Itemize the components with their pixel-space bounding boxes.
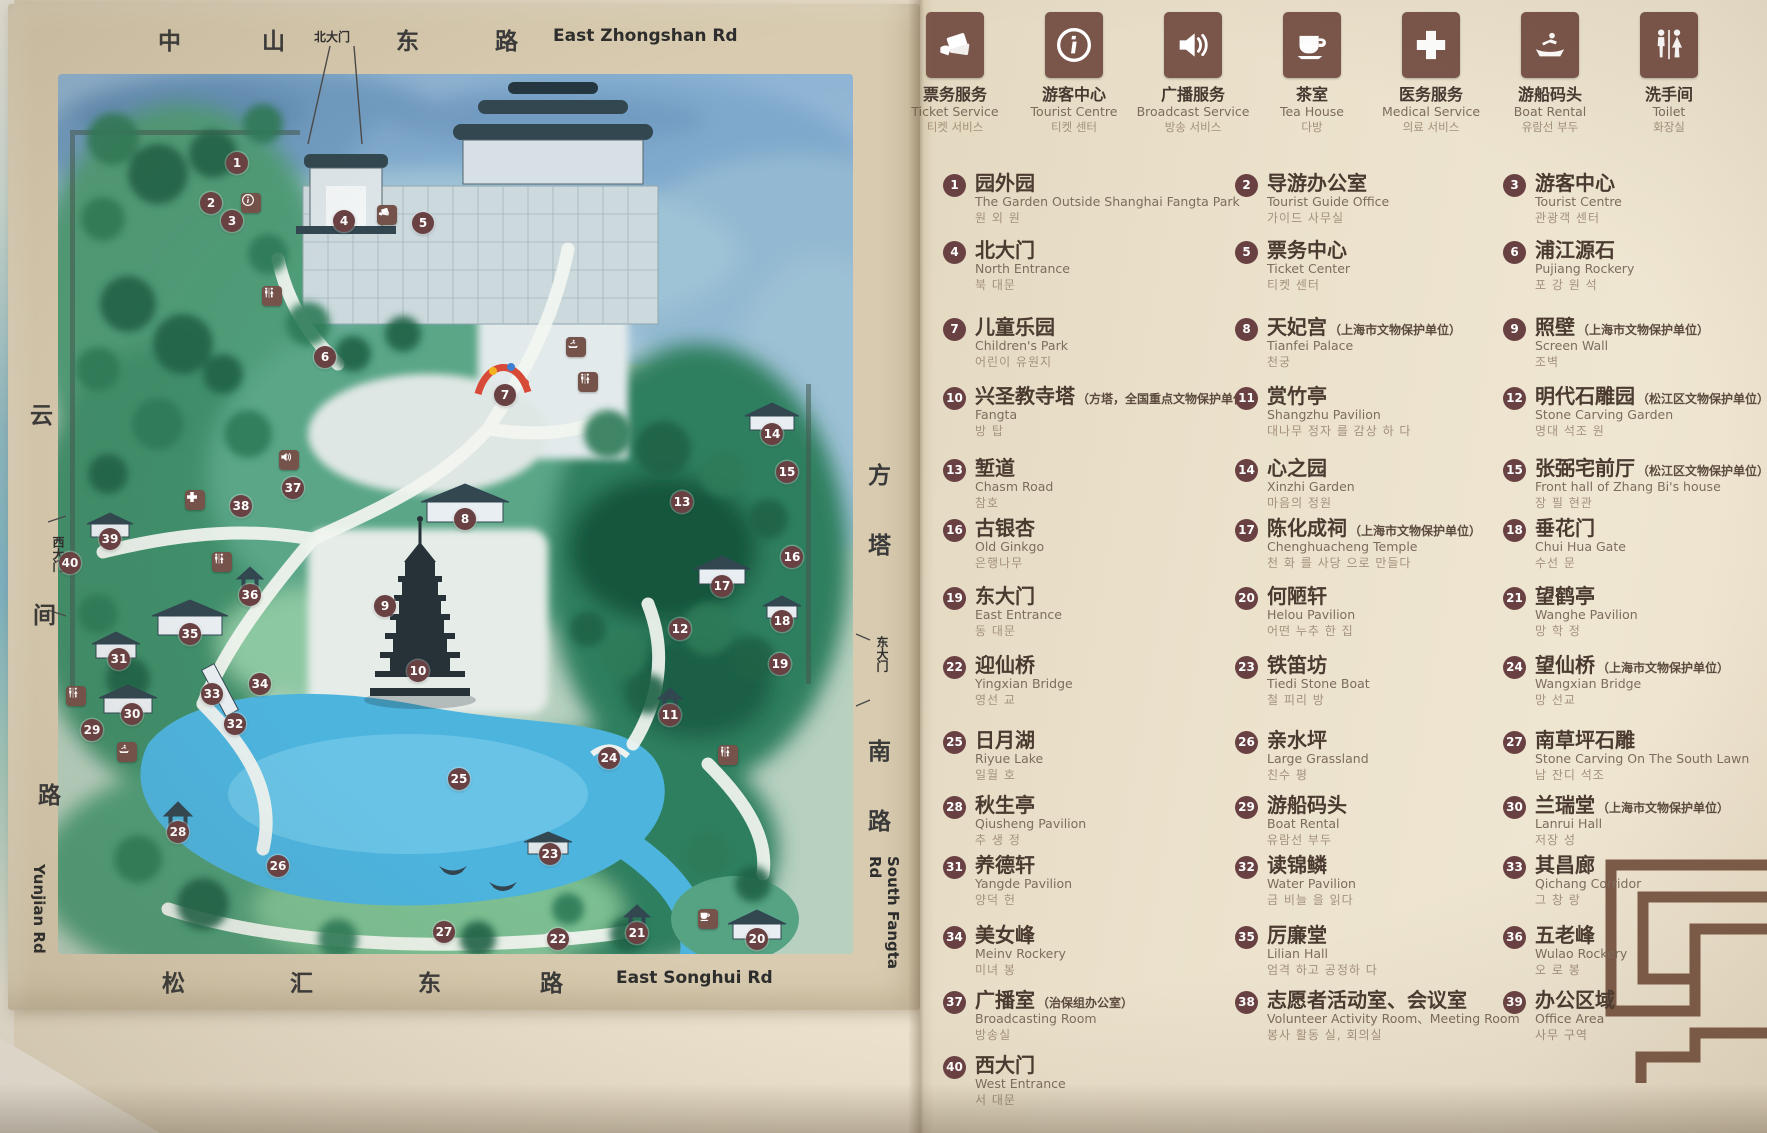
speaker-icon bbox=[1164, 12, 1222, 78]
legend-item-number: 22 bbox=[943, 656, 966, 679]
legend-item-34: 34美女峰Meinv Rockery미녀 봉 bbox=[943, 924, 1066, 978]
legend-item-name-en: Stone Carving Garden bbox=[1535, 407, 1767, 423]
legend-item-text: 望鹤亭Wanghe Pavilion망 학 정 bbox=[1535, 585, 1638, 639]
legend-item-text: 游客中心Tourist Centre관광객 센터 bbox=[1535, 172, 1622, 226]
legend-item-text: 兰瑞堂（上海市文物保护单位）Lanrui Hall저장 성 bbox=[1535, 794, 1729, 848]
legend-item-name-zh: 游船码头 bbox=[1267, 794, 1349, 816]
legend-item-name-en: Yangde Pavilion bbox=[975, 876, 1072, 892]
map-marker-15: 15 bbox=[776, 461, 798, 483]
road-right-char: 塔 bbox=[868, 526, 891, 560]
legend-item-name-ko: 천궁 bbox=[1267, 354, 1461, 370]
road-left-char: 云 bbox=[30, 396, 53, 430]
legend-item-zh-main: 垂花门 bbox=[1535, 516, 1595, 540]
map-illustration bbox=[8, 4, 920, 1010]
legend-item-text: 其昌廊Qichang Corridor그 창 랑 bbox=[1535, 854, 1641, 908]
legend-item-name-zh: 望仙桥（上海市文物保护单位） bbox=[1535, 654, 1729, 676]
legend-item-11: 11赏竹亭Shangzhu Pavilion대나무 정자 를 감상 하 다 bbox=[1235, 385, 1411, 439]
legend-item-name-en: Fangta bbox=[975, 407, 1257, 423]
legend-item-number: 39 bbox=[1503, 991, 1526, 1014]
legend-item-name-zh: 浦江源石 bbox=[1535, 239, 1634, 261]
legend-item-zh-main: 照壁 bbox=[1535, 315, 1575, 339]
map-marker-33: 33 bbox=[201, 683, 223, 705]
legend-item-name-en: Children's Park bbox=[975, 338, 1068, 354]
legend-item-name-ko: 남 잔디 석조 bbox=[1535, 767, 1749, 783]
legend-item-name-en: Wulao Rockery bbox=[1535, 946, 1627, 962]
legend-item-text: 陈化成祠（上海市文物保护单位）Chenghuacheng Temple천 화 를… bbox=[1267, 517, 1481, 571]
legend-item-name-ko: 어떤 누추 한 집 bbox=[1267, 623, 1355, 639]
legend-item-zh-main: 心之园 bbox=[1267, 456, 1327, 480]
legend-item-name-ko: 은행나무 bbox=[975, 555, 1044, 571]
legend-item-number: 25 bbox=[943, 731, 966, 754]
legend-item-protection-note: （上海市文物保护单位） bbox=[1597, 801, 1729, 815]
legend-item-name-en: Old Ginkgo bbox=[975, 539, 1044, 555]
map-marker-20: 20 bbox=[746, 928, 768, 950]
legend-item-38: 38志愿者活动室、会议室Volunteer Activity Room、Meet… bbox=[1235, 989, 1520, 1043]
legend-item-zh-main: 票务中心 bbox=[1267, 238, 1347, 262]
map-marker-27: 27 bbox=[433, 921, 455, 943]
legend-item-name-zh: 张弼宅前厅（松江区文物保护单位） bbox=[1535, 457, 1767, 479]
photo-shadow bbox=[0, 1083, 1767, 1133]
road-right-char: 方 bbox=[868, 456, 891, 490]
legend-item-number: 31 bbox=[943, 856, 966, 879]
legend-item-zh-main: 养德轩 bbox=[975, 853, 1035, 877]
legend-item-text: 办公区域Office Area사무 구역 bbox=[1535, 989, 1617, 1043]
legend-item-number: 18 bbox=[1503, 519, 1526, 542]
legend-item-name-en: Shangzhu Pavilion bbox=[1267, 407, 1411, 423]
legend-item-number: 13 bbox=[943, 459, 966, 482]
legend-item-number: 24 bbox=[1503, 656, 1526, 679]
park-map: 中 山 东 路 北大门 East Zhongshan Rd 松 汇 东 路 Ea… bbox=[8, 4, 920, 1010]
legend-item-31: 31养德轩Yangde Pavilion양덕 헌 bbox=[943, 854, 1072, 908]
legend-item-name-en: Wangxian Bridge bbox=[1535, 676, 1729, 692]
legend-item-name-zh: 厉廉堂 bbox=[1267, 924, 1378, 946]
legend-item-number: 27 bbox=[1503, 731, 1526, 754]
legend-item-25: 25日月湖Riyue Lake일월 호 bbox=[943, 729, 1043, 783]
legend-item-zh-main: 南草坪石雕 bbox=[1535, 728, 1635, 752]
boat-icon bbox=[117, 742, 137, 762]
legend-item-name-ko: 수선 문 bbox=[1535, 555, 1626, 571]
road-left-char: 间 bbox=[33, 596, 56, 630]
legend-item-text: 园外园The Garden Outside Shanghai Fangta Pa… bbox=[975, 172, 1240, 226]
legend-item-number: 17 bbox=[1235, 519, 1258, 542]
legend-item-32: 32读锦鳞Water Pavilion금 비늘 을 읽다 bbox=[1235, 854, 1356, 908]
legend-item-number: 29 bbox=[1235, 796, 1258, 819]
legend-item-zh-main: 办公区域 bbox=[1535, 988, 1615, 1012]
toilet-icon bbox=[66, 686, 86, 706]
legend-item-text: 明代石雕园（松江区文物保护单位）Stone Carving Garden명대 석… bbox=[1535, 385, 1767, 439]
map-marker-30: 30 bbox=[121, 703, 143, 725]
legend-item-name-en: Screen Wall bbox=[1535, 338, 1709, 354]
legend-item-8: 8天妃宫（上海市文物保护单位）Tianfei Palace천궁 bbox=[1235, 316, 1461, 370]
legend-item-2: 2导游办公室Tourist Guide Office가이드 사무실 bbox=[1235, 172, 1389, 226]
legend-item-name-zh: 东大门 bbox=[975, 585, 1062, 607]
speaker-icon bbox=[279, 450, 299, 470]
map-marker-11: 11 bbox=[659, 704, 681, 726]
legend-item-name-zh: 导游办公室 bbox=[1267, 172, 1389, 194]
legend-item-zh-main: 日月湖 bbox=[975, 728, 1035, 752]
legend-item-name-ko: 망 선교 bbox=[1535, 692, 1729, 708]
brochure-photo: 中 山 东 路 北大门 East Zhongshan Rd 松 汇 东 路 Ea… bbox=[0, 0, 1767, 1133]
map-marker-3: 3 bbox=[221, 210, 243, 232]
legend-item-16: 16古银杏Old Ginkgo은행나무 bbox=[943, 517, 1044, 571]
legend-item-name-ko: 동 대문 bbox=[975, 623, 1062, 639]
legend-item-name-ko: 일월 호 bbox=[975, 767, 1043, 783]
legend-item-name-zh: 读锦鳞 bbox=[1267, 854, 1356, 876]
legend-item-name-en: Broadcasting Room bbox=[975, 1011, 1133, 1027]
legend-item-protection-note: （松江区文物保护单位） bbox=[1637, 464, 1767, 478]
legend-item-name-ko: 티켓 센터 bbox=[1267, 277, 1350, 293]
info-icon bbox=[1045, 12, 1103, 78]
legend-item-name-zh: 养德轩 bbox=[975, 854, 1072, 876]
legend-item-13: 13堑道Chasm Road참호 bbox=[943, 457, 1053, 511]
legend-item-name-zh: 票务中心 bbox=[1267, 239, 1350, 261]
legend-item-name-ko: 저장 성 bbox=[1535, 832, 1729, 848]
legend-item-name-en: Qiusheng Pavilion bbox=[975, 816, 1086, 832]
legend-item-number: 5 bbox=[1235, 241, 1258, 264]
legend-item-protection-note: （上海市文物保护单位） bbox=[1577, 323, 1709, 337]
legend-item-name-ko: 추 생 정 bbox=[975, 832, 1086, 848]
east-gate-label: 东大门 bbox=[874, 636, 891, 672]
legend-item-text: 望仙桥（上海市文物保护单位）Wangxian Bridge망 선교 bbox=[1535, 654, 1729, 708]
legend-item-zh-main: 厉廉堂 bbox=[1267, 923, 1327, 947]
service-label-ko: 화장실 bbox=[1594, 120, 1744, 135]
legend-item-10: 10兴圣教寺塔（方塔，全国重点文物保护单位）Fangta방 탑 bbox=[943, 385, 1257, 439]
legend-item-name-ko: 어린이 유원지 bbox=[975, 354, 1068, 370]
legend-item-text: 广播室（治保组办公室）Broadcasting Room방송실 bbox=[975, 989, 1133, 1043]
legend-item-number: 8 bbox=[1235, 318, 1258, 341]
legend-item-36: 36五老峰Wulao Rockery오 로 봉 bbox=[1503, 924, 1627, 978]
legend-item-zh-main: 浦江源石 bbox=[1535, 238, 1615, 262]
legend-item-number: 10 bbox=[943, 387, 966, 410]
legend-item-text: 南草坪石雕Stone Carving On The South Lawn남 잔디… bbox=[1535, 729, 1749, 783]
legend-item-5: 5票务中心Ticket Center티켓 센터 bbox=[1235, 239, 1350, 293]
road-bottom-char: 汇 bbox=[290, 964, 313, 998]
legend-item-zh-main: 广播室 bbox=[975, 988, 1035, 1012]
legend-item-text: 儿童乐园Children's Park어린이 유원지 bbox=[975, 316, 1068, 370]
legend-item-zh-main: 其昌廊 bbox=[1535, 853, 1595, 877]
legend-item-name-ko: 금 비늘 을 읽다 bbox=[1267, 892, 1356, 908]
legend-item-number: 6 bbox=[1503, 241, 1526, 264]
legend-item-text: 垂花门Chui Hua Gate수선 문 bbox=[1535, 517, 1626, 571]
legend-item-number: 23 bbox=[1235, 656, 1258, 679]
legend-item-text: 养德轩Yangde Pavilion양덕 헌 bbox=[975, 854, 1072, 908]
road-right-char: 路 bbox=[868, 802, 891, 836]
legend-item-number: 21 bbox=[1503, 587, 1526, 610]
legend-item-39: 39办公区域Office Area사무 구역 bbox=[1503, 989, 1617, 1043]
legend-item-name-en: Chui Hua Gate bbox=[1535, 539, 1626, 555]
legend-item-number: 40 bbox=[943, 1056, 966, 1079]
map-marker-21: 21 bbox=[626, 922, 648, 944]
legend-item-text: 北大门North Entrance북 대문 bbox=[975, 239, 1070, 293]
boat-icon bbox=[566, 337, 586, 357]
legend-item-name-zh: 堑道 bbox=[975, 457, 1053, 479]
legend-item-15: 15张弼宅前厅（松江区文物保护单位）Front hall of Zhang Bi… bbox=[1503, 457, 1767, 511]
legend-item-protection-note: （方塔，全国重点文物保护单位） bbox=[1077, 392, 1257, 406]
legend-item-26: 26亲水坪Large Grassland친수 평 bbox=[1235, 729, 1369, 783]
map-marker-6: 6 bbox=[314, 346, 336, 368]
map-marker-9: 9 bbox=[374, 595, 396, 617]
legend-item-text: 日月湖Riyue Lake일월 호 bbox=[975, 729, 1043, 783]
legend-item-name-zh: 亲水坪 bbox=[1267, 729, 1369, 751]
legend-item-name-zh: 天妃宫（上海市文物保护单位） bbox=[1267, 316, 1461, 338]
legend-item-text: 导游办公室Tourist Guide Office가이드 사무실 bbox=[1267, 172, 1389, 226]
legend-item-text: 张弼宅前厅（松江区文物保护单位）Front hall of Zhang Bi's… bbox=[1535, 457, 1767, 511]
medical-icon bbox=[1402, 12, 1460, 78]
legend-item-name-ko: 장 필 현관 bbox=[1535, 495, 1767, 511]
legend-item-37: 37广播室（治保组办公室）Broadcasting Room방송실 bbox=[943, 989, 1133, 1043]
road-bottom-en: East Songhui Rd bbox=[616, 968, 773, 988]
legend-item-text: 东大门East Entrance동 대문 bbox=[975, 585, 1062, 639]
legend-item-text: 厉廉堂Lilian Hall엄격 하고 공정하 다 bbox=[1267, 924, 1378, 978]
legend-item-name-ko: 친수 평 bbox=[1267, 767, 1369, 783]
map-marker-12: 12 bbox=[669, 618, 691, 640]
legend-item-number: 16 bbox=[943, 519, 966, 542]
road-bottom-char: 松 bbox=[162, 964, 185, 998]
legend-item-name-ko: 유람선 부두 bbox=[1267, 832, 1349, 848]
map-marker-36: 36 bbox=[239, 584, 261, 606]
road-top-char: 路 bbox=[495, 22, 518, 56]
road-right-char: 南 bbox=[868, 732, 891, 766]
map-marker-10: 10 bbox=[407, 660, 429, 682]
legend-item-name-ko: 천 화 를 사당 으로 만들다 bbox=[1267, 555, 1481, 571]
legend-item-name-zh: 望鹤亭 bbox=[1535, 585, 1638, 607]
legend-item-14: 14心之园Xinzhi Garden마음의 정원 bbox=[1235, 457, 1355, 511]
map-marker-16: 16 bbox=[781, 546, 803, 568]
legend-item-name-zh: 何陋轩 bbox=[1267, 585, 1355, 607]
legend-item-zh-main: 望鹤亭 bbox=[1535, 584, 1595, 608]
legend-item-text: 赏竹亭Shangzhu Pavilion대나무 정자 를 감상 하 다 bbox=[1267, 385, 1411, 439]
legend-item-name-ko: 영선 교 bbox=[975, 692, 1073, 708]
legend-item-name-en: Ticket Center bbox=[1267, 261, 1350, 277]
legend-item-name-en: Qichang Corridor bbox=[1535, 876, 1641, 892]
legend-item-19: 19东大门East Entrance동 대문 bbox=[943, 585, 1062, 639]
map-marker-13: 13 bbox=[671, 491, 693, 513]
map-marker-18: 18 bbox=[771, 610, 793, 632]
legend-item-name-en: Wanghe Pavilion bbox=[1535, 607, 1638, 623]
legend-item-name-ko: 대나무 정자 를 감상 하 다 bbox=[1267, 423, 1411, 439]
legend-item-name-ko: 철 피리 방 bbox=[1267, 692, 1370, 708]
legend-item-9: 9照壁（上海市文物保护单位）Screen Wall조벽 bbox=[1503, 316, 1709, 370]
legend-item-number: 37 bbox=[943, 991, 966, 1014]
map-marker-14: 14 bbox=[761, 423, 783, 445]
legend-item-24: 24望仙桥（上海市文物保护单位）Wangxian Bridge망 선교 bbox=[1503, 654, 1729, 708]
legend-item-protection-note: （松江区文物保护单位） bbox=[1637, 392, 1767, 406]
legend-item-name-zh: 兴圣教寺塔（方塔，全国重点文物保护单位） bbox=[975, 385, 1257, 407]
legend-item-name-zh: 广播室（治保组办公室） bbox=[975, 989, 1133, 1011]
legend-item-name-en: Front hall of Zhang Bi's house bbox=[1535, 479, 1767, 495]
legend-item-zh-main: 张弼宅前厅 bbox=[1535, 456, 1635, 480]
legend-item-29: 29游船码头Boat Rental유람선 부두 bbox=[1235, 794, 1349, 848]
legend-item-name-zh: 古银杏 bbox=[975, 517, 1044, 539]
legend-item-name-en: The Garden Outside Shanghai Fangta Park bbox=[975, 194, 1240, 210]
legend-item-name-en: Tiedi Stone Boat bbox=[1267, 676, 1370, 692]
legend-item-text: 美女峰Meinv Rockery미녀 봉 bbox=[975, 924, 1066, 978]
map-marker-7: 7 bbox=[494, 384, 516, 406]
legend-item-3: 3游客中心Tourist Centre관광객 센터 bbox=[1503, 172, 1622, 226]
legend-item-name-zh: 赏竹亭 bbox=[1267, 385, 1411, 407]
map-marker-1: 1 bbox=[226, 152, 248, 174]
legend-item-name-en: East Entrance bbox=[975, 607, 1062, 623]
tea-icon bbox=[698, 909, 718, 929]
legend-item-zh-main: 天妃宫 bbox=[1267, 315, 1327, 339]
legend-item-name-ko: 망 학 정 bbox=[1535, 623, 1638, 639]
map-marker-22: 22 bbox=[547, 928, 569, 950]
legend-item-27: 27南草坪石雕Stone Carving On The South Lawn남 … bbox=[1503, 729, 1749, 783]
legend-item-18: 18垂花门Chui Hua Gate수선 문 bbox=[1503, 517, 1626, 571]
legend-item-text: 游船码头Boat Rental유람선 부두 bbox=[1267, 794, 1349, 848]
legend-item-zh-main: 兰瑞堂 bbox=[1535, 793, 1595, 817]
legend-item-name-zh: 办公区域 bbox=[1535, 989, 1617, 1011]
legend-item-number: 7 bbox=[943, 318, 966, 341]
legend-item-name-en: Volunteer Activity Room、Meeting Room bbox=[1267, 1011, 1520, 1027]
legend-item-name-zh: 日月湖 bbox=[975, 729, 1043, 751]
ticket-icon bbox=[926, 12, 984, 78]
legend-item-text: 读锦鳞Water Pavilion금 비늘 을 읽다 bbox=[1267, 854, 1356, 908]
legend-item-name-ko: 오 로 봉 bbox=[1535, 962, 1627, 978]
service-label-zh: 洗手间 bbox=[1594, 86, 1744, 104]
legend-item-35: 35厉廉堂Lilian Hall엄격 하고 공정하 다 bbox=[1235, 924, 1378, 978]
legend-item-name-en: Stone Carving On The South Lawn bbox=[1535, 751, 1749, 767]
map-marker-28: 28 bbox=[167, 821, 189, 843]
legend-item-name-en: Tourist Centre bbox=[1535, 194, 1622, 210]
legend-item-number: 36 bbox=[1503, 926, 1526, 949]
legend-item-name-en: Pujiang Rockery bbox=[1535, 261, 1634, 277]
ticket-icon bbox=[377, 205, 397, 225]
legend-item-name-en: Lilian Hall bbox=[1267, 946, 1378, 962]
legend-item-name-ko: 원 외 원 bbox=[975, 210, 1240, 226]
legend-item-number: 3 bbox=[1503, 174, 1526, 197]
road-left-en: Yunjian Rd bbox=[30, 864, 48, 994]
legend-item-zh-main: 北大门 bbox=[975, 238, 1035, 262]
tea-icon bbox=[1283, 12, 1341, 78]
map-marker-24: 24 bbox=[598, 747, 620, 769]
legend-item-zh-main: 读锦鳞 bbox=[1267, 853, 1327, 877]
map-marker-25: 25 bbox=[448, 768, 470, 790]
map-marker-5: 5 bbox=[412, 212, 434, 234]
legend-item-name-zh: 志愿者活动室、会议室 bbox=[1267, 989, 1520, 1011]
map-marker-34: 34 bbox=[249, 673, 271, 695]
legend-item-name-zh: 心之园 bbox=[1267, 457, 1355, 479]
legend-item-name-ko: 엄격 하고 공정하 다 bbox=[1267, 962, 1378, 978]
legend-item-text: 五老峰Wulao Rockery오 로 봉 bbox=[1535, 924, 1627, 978]
legend-item-protection-note: （治保组办公室） bbox=[1037, 996, 1133, 1010]
legend-item-33: 33其昌廊Qichang Corridor그 창 랑 bbox=[1503, 854, 1641, 908]
legend-item-text: 票务中心Ticket Center티켓 센터 bbox=[1267, 239, 1350, 293]
legend-item-name-en: Office Area bbox=[1535, 1011, 1617, 1027]
legend-item-text: 浦江源石Pujiang Rockery포 강 원 석 bbox=[1535, 239, 1634, 293]
legend-item-name-en: Helou Pavilion bbox=[1267, 607, 1355, 623]
legend-item-number: 19 bbox=[943, 587, 966, 610]
legend-item-number: 9 bbox=[1503, 318, 1526, 341]
legend-item-zh-main: 儿童乐园 bbox=[975, 315, 1055, 339]
legend-item-name-en: Water Pavilion bbox=[1267, 876, 1356, 892]
legend-item-name-ko: 봉사 활동 실, 회의실 bbox=[1267, 1027, 1520, 1043]
legend-item-name-zh: 南草坪石雕 bbox=[1535, 729, 1749, 751]
legend-item-number: 38 bbox=[1235, 991, 1258, 1014]
road-bottom-char: 路 bbox=[540, 964, 563, 998]
service-label-en: Toilet bbox=[1594, 104, 1744, 120]
legend-item-number: 30 bbox=[1503, 796, 1526, 819]
toilet-icon bbox=[578, 372, 598, 392]
legend-item-name-zh: 五老峰 bbox=[1535, 924, 1627, 946]
legend-item-name-zh: 秋生亭 bbox=[975, 794, 1086, 816]
medical-icon bbox=[185, 490, 205, 510]
map-marker-17: 17 bbox=[711, 575, 733, 597]
legend-item-name-zh: 游客中心 bbox=[1535, 172, 1622, 194]
legend-item-name-ko: 방 탑 bbox=[975, 423, 1257, 439]
legend-item-23: 23铁笛坊Tiedi Stone Boat철 피리 방 bbox=[1235, 654, 1370, 708]
legend-item-text: 心之园Xinzhi Garden마음의 정원 bbox=[1267, 457, 1355, 511]
legend-item-name-ko: 사무 구역 bbox=[1535, 1027, 1617, 1043]
legend-item-name-ko: 조벽 bbox=[1535, 354, 1709, 370]
legend-item-zh-main: 古银杏 bbox=[975, 516, 1035, 540]
legend-item-zh-main: 明代石雕园 bbox=[1535, 384, 1635, 408]
legend-item-text: 古银杏Old Ginkgo은행나무 bbox=[975, 517, 1044, 571]
map-marker-31: 31 bbox=[108, 648, 130, 670]
map-marker-37: 37 bbox=[282, 477, 304, 499]
legend-item-name-zh: 迎仙桥 bbox=[975, 654, 1073, 676]
legend-item-zh-main: 何陋轩 bbox=[1267, 584, 1327, 608]
toilet-icon bbox=[1640, 12, 1698, 78]
legend-item-name-ko: 미녀 봉 bbox=[975, 962, 1066, 978]
map-marker-39: 39 bbox=[99, 528, 121, 550]
legend-item-name-en: Chenghuacheng Temple bbox=[1267, 539, 1481, 555]
legend-item-30: 30兰瑞堂（上海市文物保护单位）Lanrui Hall저장 성 bbox=[1503, 794, 1729, 848]
road-right-en: South Fangta Rd bbox=[866, 856, 902, 996]
legend-item-number: 4 bbox=[943, 241, 966, 264]
legend-item-name-en: Xinzhi Garden bbox=[1267, 479, 1355, 495]
legend-item-zh-main: 美女峰 bbox=[975, 923, 1035, 947]
legend-item-number: 35 bbox=[1235, 926, 1258, 949]
legend-item-6: 6浦江源石Pujiang Rockery포 강 원 석 bbox=[1503, 239, 1634, 293]
legend-item-12: 12明代石雕园（松江区文物保护单位）Stone Carving Garden명대… bbox=[1503, 385, 1767, 439]
map-marker-23: 23 bbox=[539, 843, 561, 865]
legend-item-name-zh: 陈化成祠（上海市文物保护单位） bbox=[1267, 517, 1481, 539]
legend-item-name-zh: 美女峰 bbox=[975, 924, 1066, 946]
toilet-icon bbox=[262, 286, 282, 306]
legend-item-zh-main: 亲水坪 bbox=[1267, 728, 1327, 752]
legend-item-name-en: Yingxian Bridge bbox=[975, 676, 1073, 692]
legend-item-name-en: Chasm Road bbox=[975, 479, 1053, 495]
legend-item-name-zh: 铁笛坊 bbox=[1267, 654, 1370, 676]
legend-item-number: 32 bbox=[1235, 856, 1258, 879]
legend-item-zh-main: 铁笛坊 bbox=[1267, 653, 1327, 677]
legend-item-zh-main: 望仙桥 bbox=[1535, 653, 1595, 677]
legend-item-name-en: Meinv Rockery bbox=[975, 946, 1066, 962]
toilet-icon bbox=[212, 552, 232, 572]
map-marker-35: 35 bbox=[179, 623, 201, 645]
map-marker-4: 4 bbox=[333, 210, 355, 232]
boat-icon bbox=[1521, 12, 1579, 78]
legend-item-name-en: Tianfei Palace bbox=[1267, 338, 1461, 354]
legend-item-number: 14 bbox=[1235, 459, 1258, 482]
legend-item-name-en: Boat Rental bbox=[1267, 816, 1349, 832]
legend-item-text: 秋生亭Qiusheng Pavilion추 생 정 bbox=[975, 794, 1086, 848]
legend-item-17: 17陈化成祠（上海市文物保护单位）Chenghuacheng Temple천 화… bbox=[1235, 517, 1481, 571]
legend-item-zh-main: 园外园 bbox=[975, 171, 1035, 195]
legend-item-name-zh: 北大门 bbox=[975, 239, 1070, 261]
legend-item-number: 26 bbox=[1235, 731, 1258, 754]
legend-item-name-ko: 그 창 랑 bbox=[1535, 892, 1641, 908]
legend-item-text: 兴圣教寺塔（方塔，全国重点文物保护单位）Fangta방 탑 bbox=[975, 385, 1257, 439]
legend-item-name-zh: 照壁（上海市文物保护单位） bbox=[1535, 316, 1709, 338]
road-top-char: 东 bbox=[396, 22, 419, 56]
map-marker-19: 19 bbox=[769, 653, 791, 675]
toilet-icon bbox=[718, 745, 738, 765]
legend-item-name-zh: 明代石雕园（松江区文物保护单位） bbox=[1535, 385, 1767, 407]
legend-item-text: 天妃宫（上海市文物保护单位）Tianfei Palace천궁 bbox=[1267, 316, 1461, 370]
legend-item-7: 7儿童乐园Children's Park어린이 유원지 bbox=[943, 316, 1068, 370]
